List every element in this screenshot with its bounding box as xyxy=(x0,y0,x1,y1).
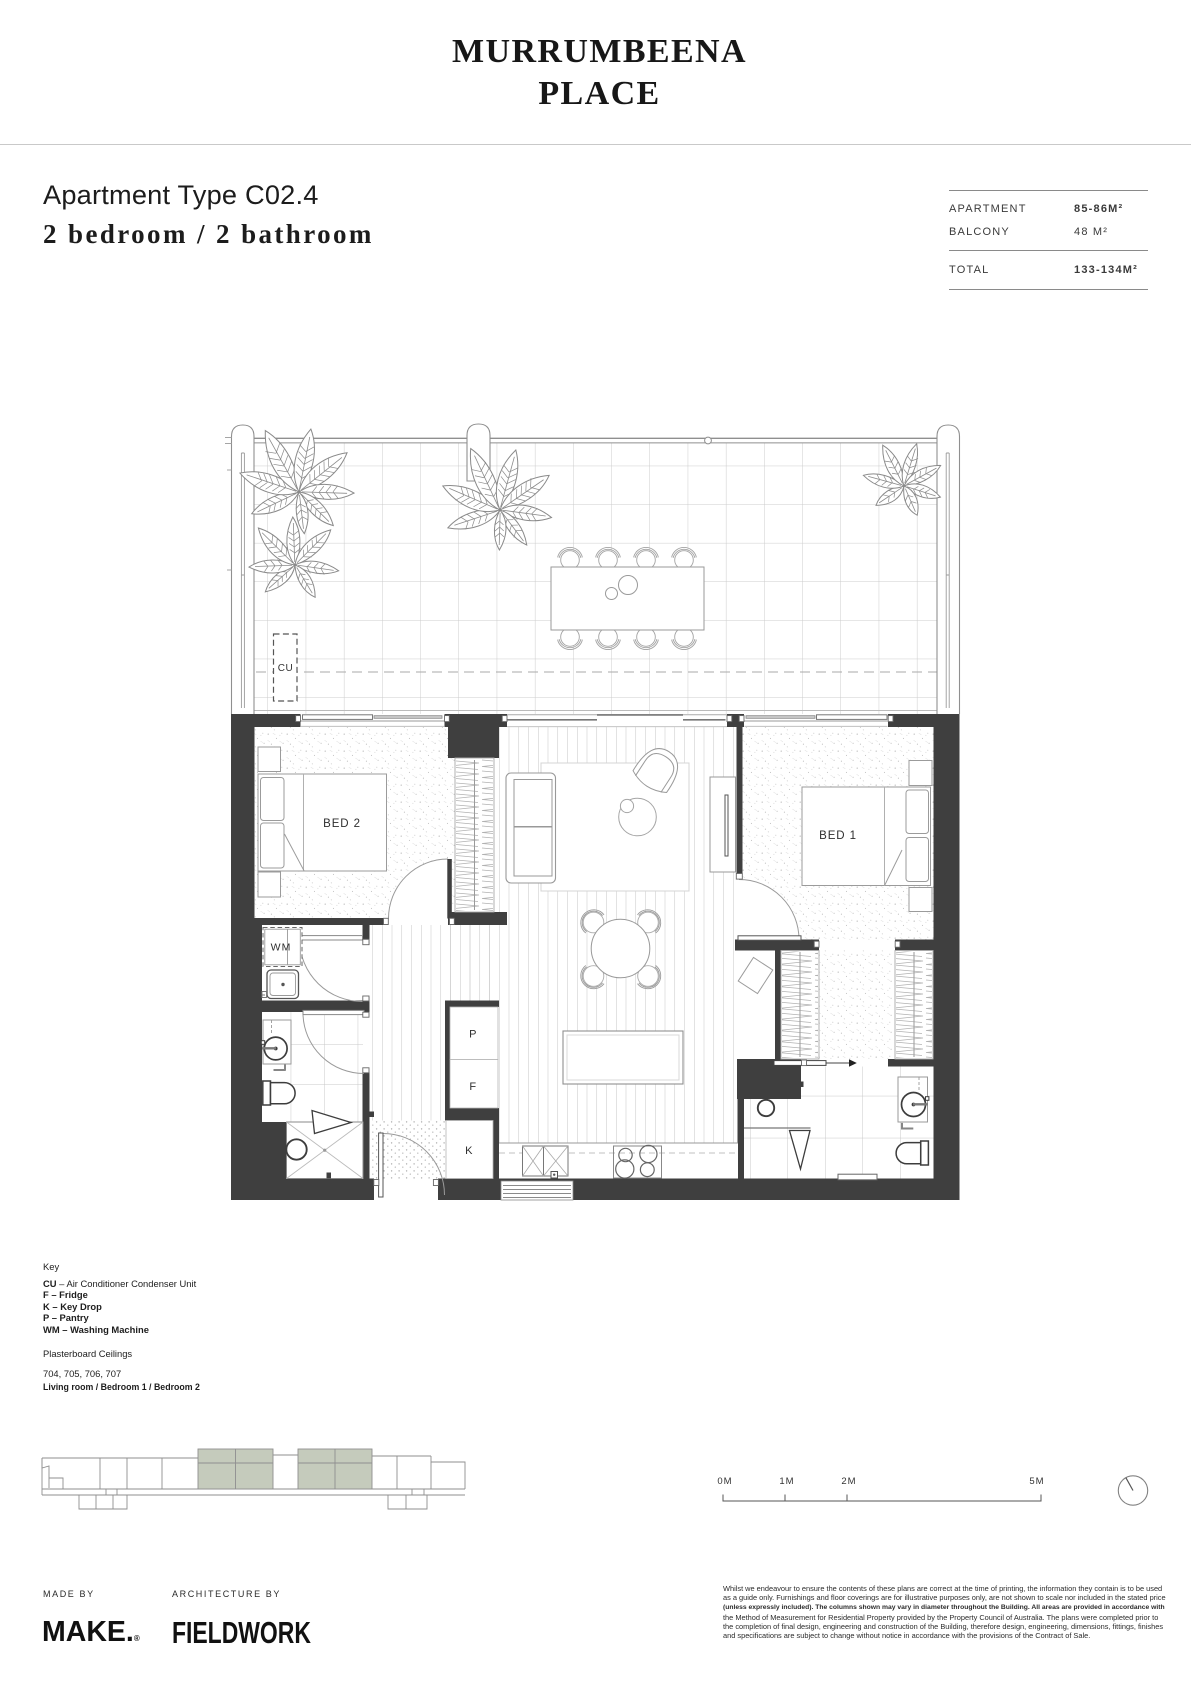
svg-text:CU: CU xyxy=(278,663,293,674)
svg-text:BED 1: BED 1 xyxy=(819,830,857,842)
svg-text:5M: 5M xyxy=(1029,1476,1044,1487)
svg-text:BED 2: BED 2 xyxy=(323,818,361,830)
svg-text:WM: WM xyxy=(271,942,292,954)
svg-text:0M: 0M xyxy=(717,1476,732,1487)
svg-text:F: F xyxy=(469,1081,476,1093)
svg-text:1M: 1M xyxy=(779,1476,794,1487)
svg-text:2M: 2M xyxy=(841,1476,856,1487)
svg-text:P: P xyxy=(469,1029,477,1041)
svg-text:K: K xyxy=(465,1145,473,1157)
